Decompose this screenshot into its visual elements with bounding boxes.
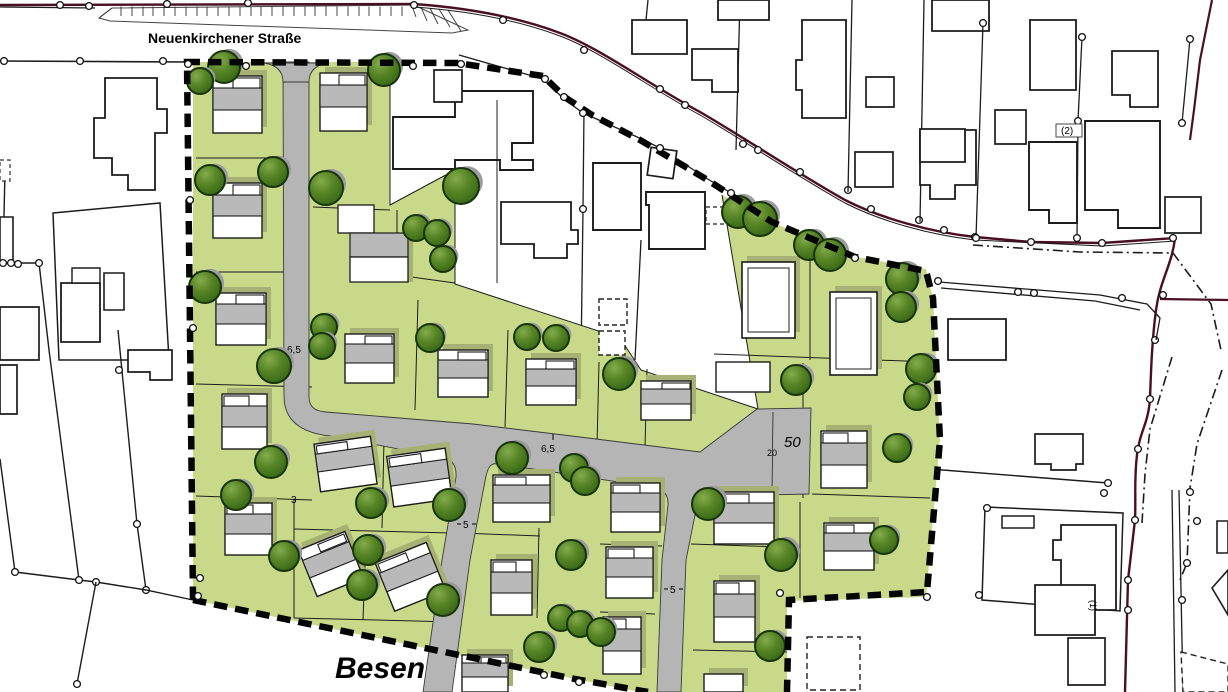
svg-text:50: 50 <box>784 434 801 451</box>
svg-text:5: 5 <box>670 585 676 596</box>
svg-text:(2): (2) <box>1061 126 1073 137</box>
svg-text:6,5: 6,5 <box>541 444 555 455</box>
svg-text:20: 20 <box>767 448 777 458</box>
svg-text:Neuenkirchener Straße: Neuenkirchener Straße <box>148 30 301 46</box>
svg-text:(1): (1) <box>1088 600 1098 611</box>
svg-text:Besen: Besen <box>335 652 425 685</box>
svg-text:5: 5 <box>463 520 469 531</box>
svg-text:3: 3 <box>291 495 297 506</box>
